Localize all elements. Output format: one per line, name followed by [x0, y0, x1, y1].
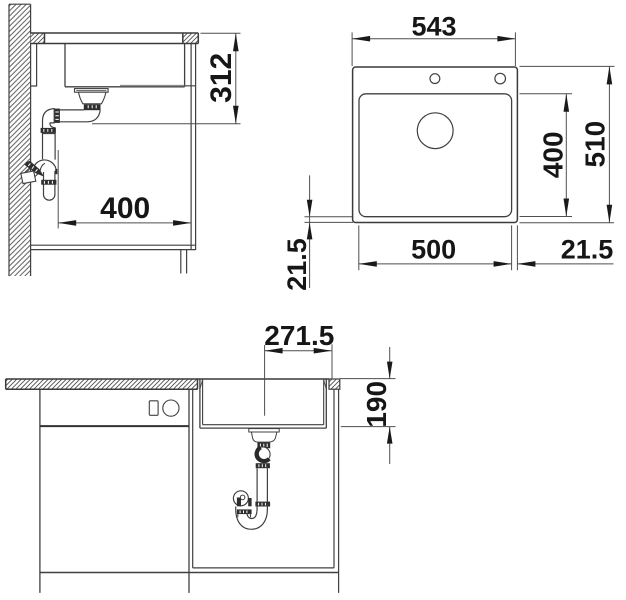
svg-text:21.5: 21.5: [282, 238, 312, 291]
svg-text:400: 400: [100, 192, 150, 225]
svg-text:312: 312: [205, 53, 238, 103]
svg-text:271.5: 271.5: [264, 320, 334, 351]
svg-text:190: 190: [361, 381, 392, 428]
svg-text:510: 510: [580, 121, 611, 168]
svg-text:543: 543: [411, 12, 456, 42]
svg-text:500: 500: [411, 235, 456, 265]
svg-text:21.5: 21.5: [561, 235, 614, 265]
svg-text:400: 400: [538, 131, 569, 178]
